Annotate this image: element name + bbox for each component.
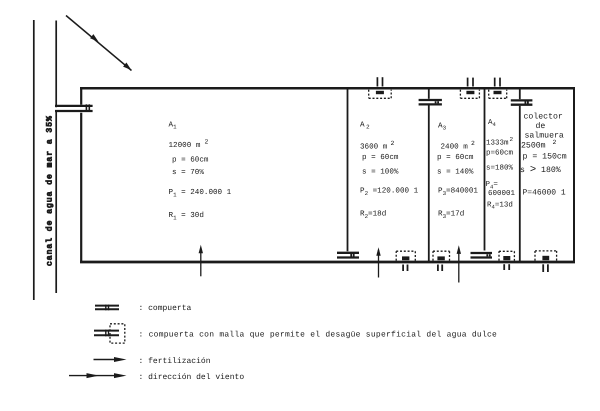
- svg-text:2: 2: [205, 139, 209, 146]
- svg-text:p = 60cm: p = 60cm: [437, 153, 474, 162]
- svg-text:12000 m: 12000 m: [169, 141, 201, 150]
- svg-text:P4=: P4=: [486, 181, 499, 190]
- svg-text:s = 100%: s = 100%: [362, 167, 399, 176]
- svg-text:2: 2: [471, 140, 475, 147]
- svg-text:s = 70%: s = 70%: [172, 168, 204, 177]
- svg-text:: fertilización: : fertilización: [139, 357, 211, 366]
- svg-text:s=180%: s=180%: [486, 163, 514, 172]
- svg-text:p = 150cm: p = 150cm: [523, 152, 567, 161]
- svg-text:s = 140%: s = 140%: [437, 167, 474, 176]
- svg-text:R2=18d: R2=18d: [360, 210, 386, 220]
- svg-text:P3=840001: P3=840001: [438, 187, 478, 197]
- svg-text:A2: A2: [360, 122, 370, 131]
- svg-text:R3=17d: R3=17d: [438, 210, 464, 220]
- svg-text:2500m: 2500m: [521, 141, 546, 150]
- svg-text:salmuera: salmuera: [525, 131, 564, 140]
- svg-text:A1: A1: [169, 122, 178, 131]
- svg-text:P=46000 1: P=46000 1: [523, 188, 566, 197]
- svg-text:p=60cm: p=60cm: [486, 148, 514, 157]
- svg-text:colector: colector: [524, 113, 563, 122]
- svg-text:P1 = 240.000 1: P1 = 240.000 1: [169, 188, 232, 198]
- svg-text:R1 = 30d: R1 = 30d: [169, 211, 204, 221]
- svg-text:A4: A4: [488, 119, 497, 128]
- svg-text:2400 m: 2400 m: [441, 143, 469, 152]
- svg-text:p = 60cm: p = 60cm: [362, 153, 399, 162]
- svg-text:2: 2: [553, 139, 557, 146]
- svg-text:600001: 600001: [488, 189, 516, 198]
- svg-text:2: 2: [391, 140, 395, 147]
- svg-text:: dirección del viento: : dirección del viento: [139, 373, 245, 382]
- svg-text:de: de: [536, 122, 546, 131]
- svg-text:3600 m: 3600 m: [360, 143, 388, 152]
- svg-text:p = 60cm: p = 60cm: [172, 156, 209, 165]
- svg-text:R4=13d: R4=13d: [487, 200, 513, 210]
- svg-text:: compuerta: : compuerta: [139, 304, 192, 313]
- svg-text:: compuerta con malla que perm: : compuerta con malla que permite el des…: [139, 330, 498, 339]
- svg-text:P2 =120.000 1: P2 =120.000 1: [360, 187, 419, 197]
- svg-text:canal de agua de mar a 35%: canal de agua de mar a 35%: [45, 115, 54, 266]
- svg-text:1333m: 1333m: [486, 138, 509, 147]
- svg-text:2: 2: [510, 136, 514, 143]
- svg-text:s > 180%: s > 180%: [520, 164, 561, 176]
- svg-text:A3: A3: [438, 123, 447, 132]
